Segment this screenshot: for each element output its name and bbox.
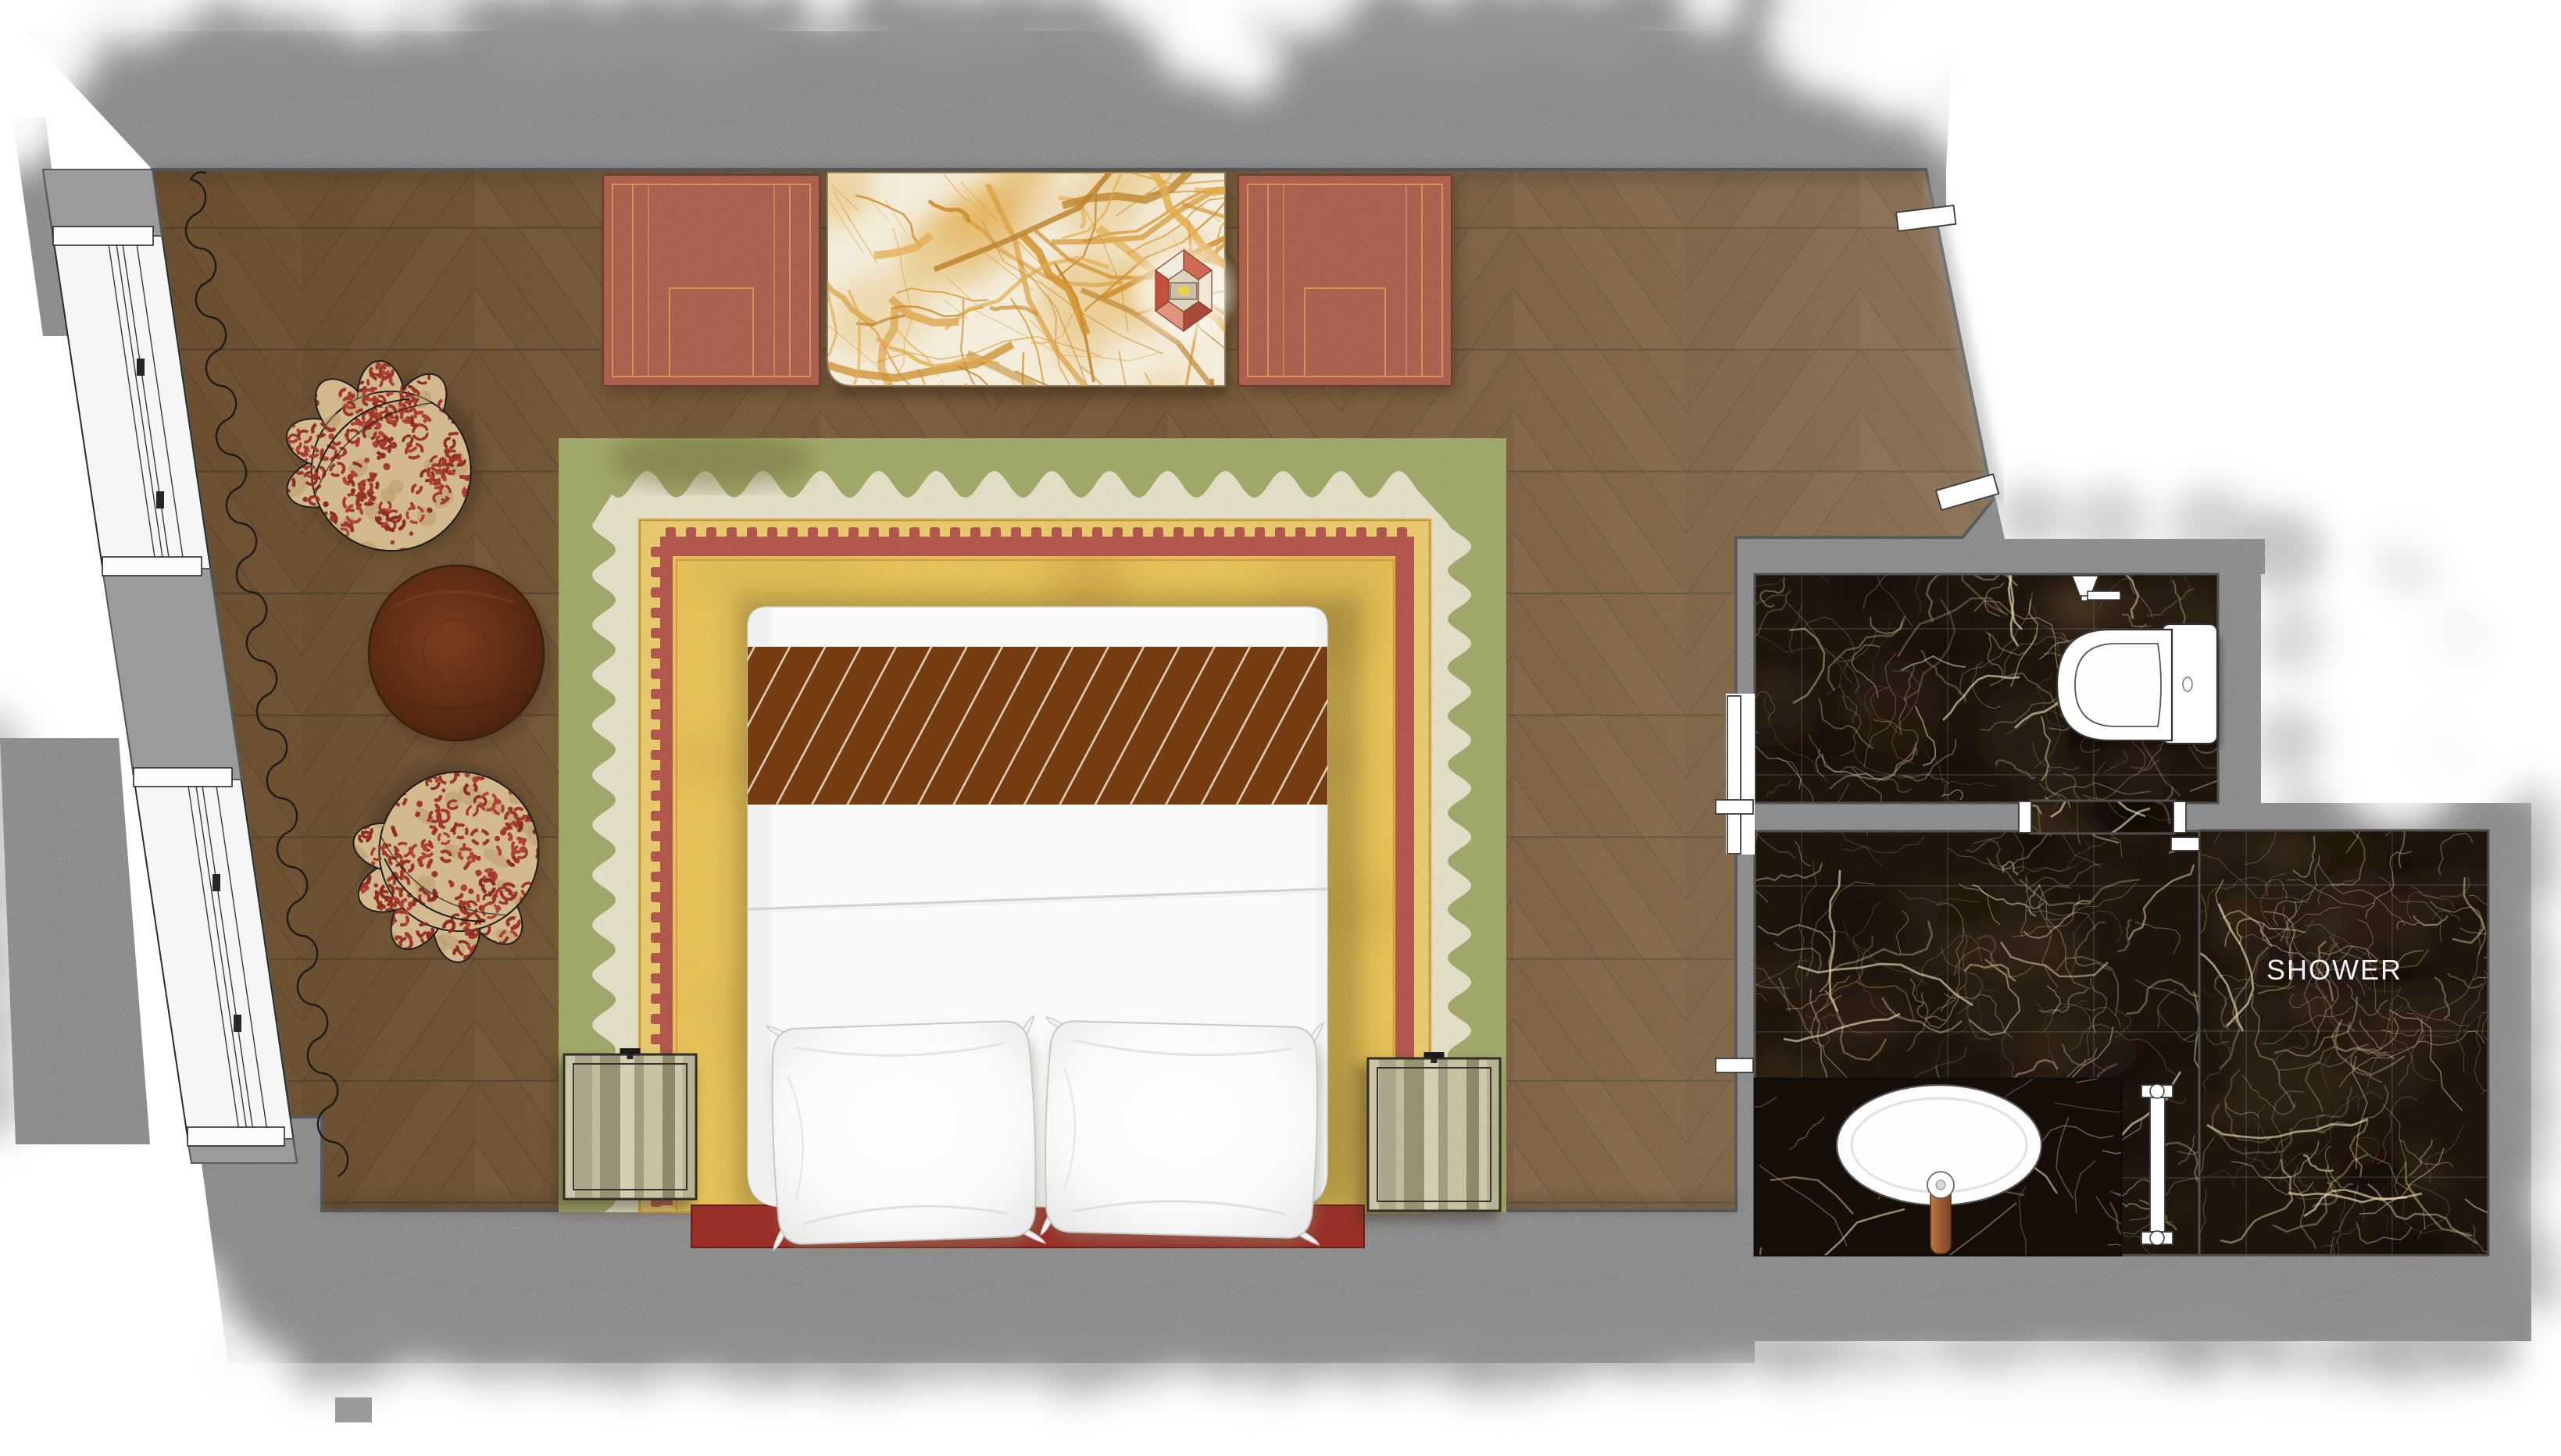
svg-text:SHOWER: SHOWER [2266, 954, 2402, 986]
